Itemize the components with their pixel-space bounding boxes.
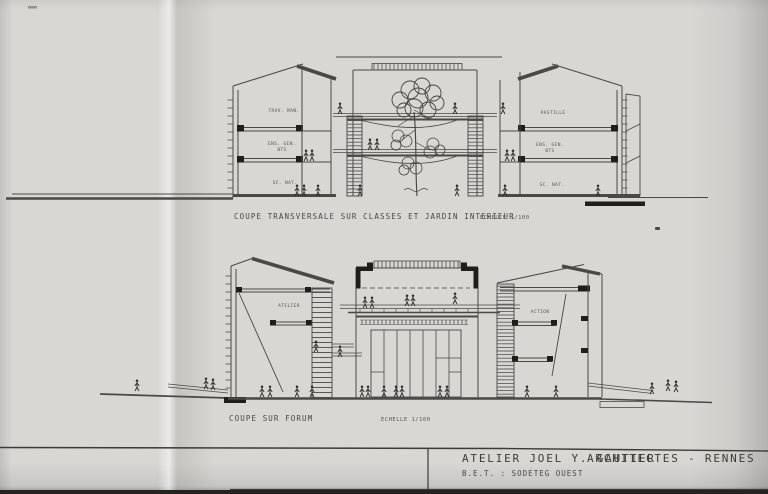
upper-ground-left bbox=[6, 194, 233, 199]
room-label-upper-left-floor1: SC. NAT. bbox=[273, 181, 298, 187]
room-label-lower-left: ATELIER bbox=[278, 304, 300, 310]
upper-section-caption: COUPE TRANSVERSALE SUR CLASSES ET JARDIN… bbox=[234, 212, 515, 221]
room-label-upper-right-floor3: PASTILLE bbox=[541, 111, 566, 117]
room-label-upper-right-floor1: SC. NAT. bbox=[540, 183, 565, 189]
drawing-sheet: COUPE TRANSVERSALE SUR CLASSES ET JARDIN… bbox=[0, 0, 768, 490]
title-block-profession-city: ARCHITECTES - RENNES bbox=[587, 452, 755, 465]
lower-left-wing bbox=[224, 259, 362, 404]
upper-ground-right bbox=[585, 198, 708, 207]
lower-section-caption: COUPE SUR FORUM bbox=[229, 414, 313, 423]
lower-ground-right-ramp bbox=[588, 383, 712, 408]
upper-atrium-garden bbox=[333, 57, 502, 196]
lower-section-scale-note: ECHELLE 1/100 bbox=[381, 417, 431, 423]
room-label-line1: ENS. GEN. bbox=[536, 143, 564, 149]
lower-ground-left-ramp bbox=[100, 384, 228, 398]
interior-garden-tree bbox=[391, 78, 445, 196]
room-label-upper-right-floor2: ENS. GEN. BTS bbox=[536, 143, 564, 154]
upper-section-drawing bbox=[6, 57, 708, 206]
room-label-line2: BTS bbox=[536, 149, 564, 155]
upper-section-scale-note: ECHELLE 1/100 bbox=[480, 215, 530, 221]
photo-of-architectural-drawing: COUPE TRANSVERSALE SUR CLASSES ET JARDIN… bbox=[0, 0, 768, 494]
room-label-line2: BTS bbox=[268, 148, 296, 154]
room-label-line1: ENS. GEN. bbox=[268, 142, 296, 148]
room-label-lower-right: ACTION bbox=[531, 310, 550, 316]
upper-right-classroom-block bbox=[498, 64, 640, 198]
title-block-engineer: B.E.T. : SODETEG OUEST bbox=[462, 469, 583, 478]
lower-section-drawing bbox=[100, 259, 712, 408]
lower-right-wing bbox=[497, 265, 602, 398]
room-label-upper-left-floor2: ENS. GEN. BTS bbox=[268, 142, 296, 153]
upper-left-classroom-block bbox=[228, 64, 337, 198]
room-label-upper-left-floor3: TRAV. MAN. bbox=[268, 109, 299, 115]
lower-forum-hall bbox=[340, 261, 520, 398]
